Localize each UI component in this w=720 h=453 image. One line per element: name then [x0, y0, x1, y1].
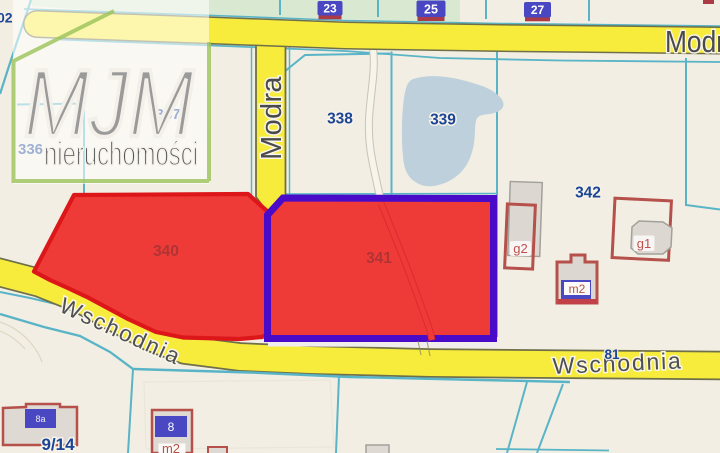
svg-text:341: 341: [366, 250, 392, 267]
svg-text:m2: m2: [162, 441, 180, 453]
svg-text:8a: 8a: [35, 414, 45, 424]
svg-text:g1: g1: [637, 236, 651, 251]
svg-text:340: 340: [153, 243, 179, 260]
svg-text:23: 23: [323, 2, 337, 16]
svg-text:Modra: Modra: [665, 25, 720, 59]
svg-text:81: 81: [604, 347, 620, 362]
svg-text:Modra: Modra: [256, 76, 288, 160]
svg-text:g2: g2: [513, 241, 527, 256]
svg-text:27: 27: [531, 3, 545, 17]
svg-text:339: 339: [430, 112, 456, 129]
svg-text:25: 25: [424, 3, 438, 17]
svg-text:9/14: 9/14: [41, 435, 75, 453]
svg-text:342: 342: [575, 185, 601, 202]
svg-text:338: 338: [327, 111, 353, 128]
svg-text:02: 02: [0, 10, 13, 26]
svg-text:nieruchomości: nieruchomości: [44, 135, 198, 172]
svg-text:8: 8: [168, 420, 175, 434]
svg-text:m2: m2: [569, 282, 586, 296]
